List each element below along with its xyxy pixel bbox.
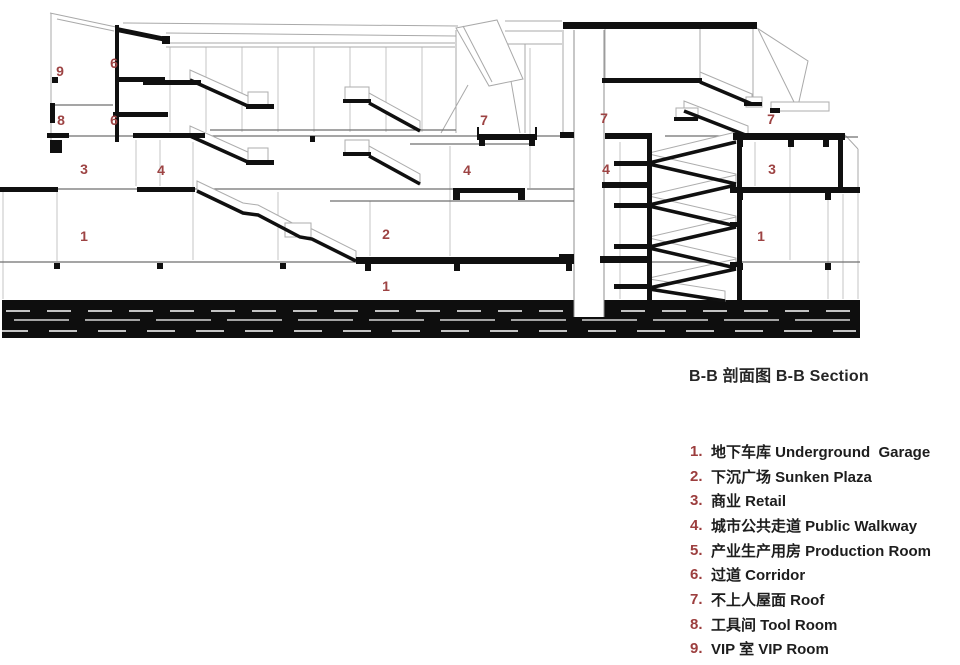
legend-item-number: 8. bbox=[690, 616, 711, 633]
legend-item-number: 1. bbox=[690, 443, 711, 460]
legend-item: 7. 不上人屋面 Roof bbox=[690, 587, 931, 612]
legend-item-number: 5. bbox=[690, 542, 711, 559]
room-number-label: 6 bbox=[110, 55, 118, 71]
legend-item: 5. 产业生产用房 Production Room bbox=[690, 538, 931, 563]
room-number-label: 1 bbox=[757, 228, 765, 244]
legend-item: 2. 下沉广场 Sunken Plaza bbox=[690, 464, 931, 489]
legend: 1. 地下车库 Underground Garage 2. 下沉广场 Sunke… bbox=[690, 439, 931, 661]
legend-item: 9. VIP 室 VIP Room bbox=[690, 637, 931, 662]
room-number-label: 7 bbox=[480, 112, 488, 128]
room-number-label: 9 bbox=[56, 63, 64, 79]
legend-item: 6. 过道 Corridor bbox=[690, 562, 931, 587]
legend-item-text: 工具间 Tool Room bbox=[711, 614, 837, 635]
ground-hatch bbox=[0, 300, 860, 338]
legend-item-number: 9. bbox=[690, 640, 711, 657]
legend-item: 3. 商业 Retail bbox=[690, 488, 931, 513]
legend-item-number: 2. bbox=[690, 468, 711, 485]
room-number-label: 4 bbox=[157, 162, 165, 178]
room-number-label: 7 bbox=[767, 111, 775, 127]
legend-item-number: 6. bbox=[690, 566, 711, 583]
legend-item-text: VIP 室 VIP Room bbox=[711, 638, 829, 659]
legend-item-text: 地下车库 Underground Garage bbox=[711, 441, 930, 462]
room-number-label: 3 bbox=[80, 161, 88, 177]
legend-item-text: 产业生产用房 Production Room bbox=[711, 540, 931, 561]
elevator-shaft bbox=[574, 30, 604, 317]
legend-item: 8. 工具间 Tool Room bbox=[690, 612, 931, 637]
section-drawing-area: 9 6 8 6 3 4 7 4 7 4 7 3 1 2 1 1 bbox=[0, 0, 960, 350]
legend-item-text: 不上人屋面 Roof bbox=[711, 589, 824, 610]
legend-item-text: 城市公共走道 Public Walkway bbox=[711, 515, 917, 536]
room-number-label: 8 bbox=[57, 112, 65, 128]
room-number-label: 1 bbox=[382, 278, 390, 294]
legend-item-number: 4. bbox=[690, 517, 711, 534]
legend-item-text: 下沉广场 Sunken Plaza bbox=[711, 466, 872, 487]
legend-item-number: 7. bbox=[690, 591, 711, 608]
room-number-label: 6 bbox=[110, 112, 118, 128]
room-number-label: 7 bbox=[600, 110, 608, 126]
building-outlines bbox=[50, 13, 858, 190]
legend-item-text: 过道 Corridor bbox=[711, 564, 805, 585]
legend-item: 4. 城市公共走道 Public Walkway bbox=[690, 513, 931, 538]
legend-item: 1. 地下车库 Underground Garage bbox=[690, 439, 931, 464]
room-number-label: 1 bbox=[80, 228, 88, 244]
architectural-section-sheet: 9 6 8 6 3 4 7 4 7 4 7 3 1 2 1 1 B-B 剖面图 … bbox=[0, 0, 960, 665]
legend-item-number: 3. bbox=[690, 492, 711, 509]
room-number-label: 4 bbox=[463, 162, 471, 178]
room-number-label: 2 bbox=[382, 226, 390, 242]
section-drawing bbox=[0, 0, 960, 350]
legend-item-text: 商业 Retail bbox=[711, 490, 786, 511]
room-number-label: 3 bbox=[768, 161, 776, 177]
room-number-label: 4 bbox=[602, 161, 610, 177]
drawing-caption: B-B 剖面图 B-B Section bbox=[689, 362, 869, 386]
